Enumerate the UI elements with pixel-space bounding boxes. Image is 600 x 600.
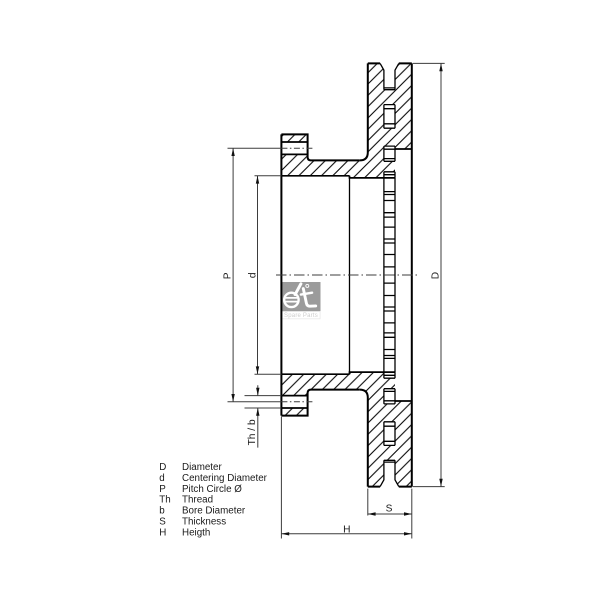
- svg-text:Pitch Circle Ø: Pitch Circle Ø: [182, 484, 242, 495]
- svg-text:b: b: [159, 506, 165, 517]
- svg-text:Bore Diameter: Bore Diameter: [182, 506, 246, 517]
- svg-text:Th / b: Th / b: [247, 419, 258, 445]
- svg-text:Thread: Thread: [182, 495, 213, 506]
- svg-text:H: H: [343, 525, 350, 536]
- svg-text:Th: Th: [159, 495, 170, 506]
- svg-text:Spare Parts: Spare Parts: [284, 313, 318, 319]
- svg-text:H: H: [159, 527, 166, 538]
- svg-text:Heigth: Heigth: [182, 527, 210, 538]
- svg-text:d: d: [247, 272, 258, 278]
- svg-text:P: P: [159, 484, 166, 495]
- svg-text:d: d: [159, 473, 164, 484]
- svg-text:P: P: [223, 272, 234, 279]
- svg-text:S: S: [159, 517, 166, 528]
- svg-text:D: D: [430, 272, 441, 279]
- svg-text:D: D: [159, 462, 166, 473]
- svg-text:Centering Diameter: Centering Diameter: [182, 473, 268, 484]
- svg-text:S: S: [386, 503, 393, 514]
- svg-text:Thickness: Thickness: [182, 517, 226, 528]
- svg-text:Diameter: Diameter: [182, 462, 222, 473]
